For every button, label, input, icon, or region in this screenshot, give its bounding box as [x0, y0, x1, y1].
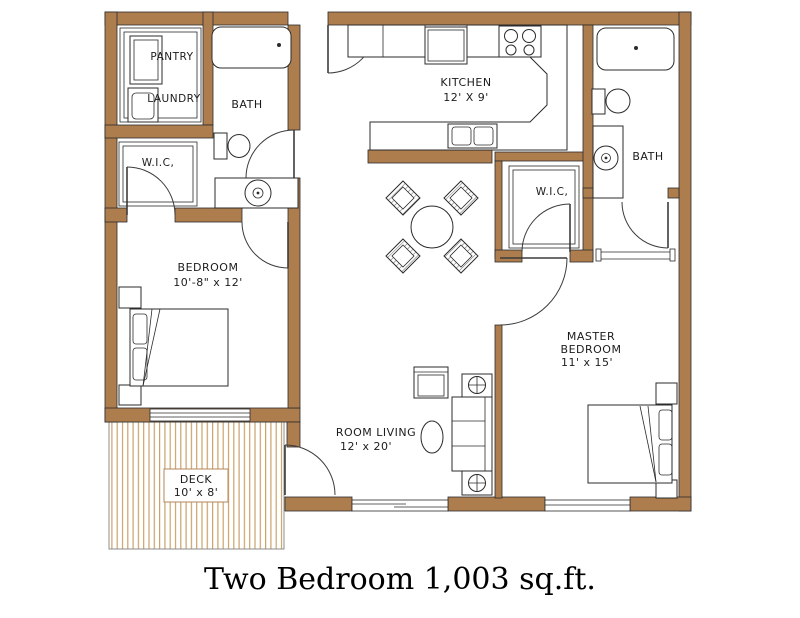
bed-master	[588, 383, 677, 498]
wall-wic-right-bottom-b	[570, 250, 593, 262]
floor-plan-drawing: PANTRY LAUNDRY BATH W.I.C, KITCHEN 12' X…	[0, 0, 800, 558]
bathtub	[212, 27, 291, 68]
wall-divider-a	[495, 161, 502, 258]
nightstand	[119, 385, 141, 405]
bath-left-door	[246, 130, 294, 178]
window-master	[545, 500, 630, 511]
sliding-door-living	[352, 500, 448, 511]
wall-laundry-bottom	[105, 125, 213, 138]
bathtub	[597, 28, 674, 70]
wall-wic-bedroom-a	[105, 208, 127, 222]
wall-deck-door	[287, 422, 300, 447]
window-bedroom	[150, 409, 250, 421]
refrigerator	[425, 27, 467, 64]
wic-left-lining	[119, 142, 197, 206]
kitchen-dims: 12' X 9'	[443, 91, 489, 104]
bed-left	[119, 287, 228, 405]
wic-left-door	[127, 167, 175, 215]
sink-vanity	[593, 126, 623, 198]
wic-right-door	[522, 204, 570, 252]
bath-left-label: BATH	[231, 98, 262, 111]
master-dims: 11' x 15'	[561, 356, 613, 369]
kitchen-label: KITCHEN	[440, 76, 491, 89]
master-door	[500, 258, 567, 325]
toilet	[592, 89, 630, 114]
bedroom-door	[242, 222, 288, 268]
breakfast-bar	[368, 150, 492, 163]
living-dims: 12' x 20'	[340, 440, 392, 453]
deck-label: DECK	[180, 473, 213, 486]
wall-bottom-a	[285, 497, 352, 511]
wall-bath-right-left	[583, 25, 593, 260]
bath-right-label: BATH	[632, 150, 663, 163]
end-table-lamp	[462, 374, 492, 397]
deck-door	[285, 445, 335, 495]
cased-opening-master	[596, 249, 675, 261]
dining-chair	[444, 181, 478, 215]
pantry-label: PANTRY	[150, 51, 193, 63]
wall-top-left	[105, 12, 288, 25]
plan-title: Two Bedroom 1,003 sq.ft.	[0, 562, 800, 597]
dining-chair	[386, 239, 420, 273]
nightstand	[119, 287, 141, 308]
toilet	[214, 133, 250, 159]
laundry-label: LAUNDRY	[147, 93, 201, 105]
wall-bottom-c	[630, 497, 691, 511]
bedroom-dims: 10'-8" x 12'	[173, 276, 243, 289]
master-label-2: BEDROOM	[561, 343, 622, 356]
coffee-table	[421, 421, 443, 453]
wall-divider-b	[495, 325, 502, 498]
wall-wic-bedroom-b	[175, 208, 242, 222]
armchair	[414, 367, 448, 398]
wall-bath-right-bottom-b	[668, 188, 679, 198]
wall-wic-right-top	[495, 152, 593, 161]
wall-right	[679, 12, 691, 511]
master-label-1: MASTER	[567, 330, 615, 343]
sink-vanity	[215, 178, 298, 208]
dining-chair	[444, 239, 478, 273]
end-table-lamp	[462, 471, 492, 495]
floor-plan-page: PANTRY LAUNDRY BATH W.I.C, KITCHEN 12' X…	[0, 0, 800, 618]
bath-right-fixtures	[592, 28, 674, 198]
wall-bottom-b	[448, 497, 545, 511]
pantry-laundry	[120, 28, 201, 122]
living-label: ROOM LIVING	[336, 426, 416, 439]
wic-right-label: W.I.C,	[536, 186, 569, 198]
dining-chair	[386, 181, 420, 215]
wic-right-lining	[509, 166, 579, 248]
living-room-furniture	[414, 367, 492, 495]
bath-right-door	[622, 202, 668, 248]
deck-dims: 10' x 8'	[174, 486, 219, 499]
wall-left-section-b	[288, 178, 300, 408]
stove	[499, 26, 541, 57]
nightstand	[656, 383, 677, 404]
wic-left-label: W.I.C,	[142, 157, 175, 169]
wall-wic-right-bottom-a	[495, 250, 522, 262]
wall-top-right	[328, 12, 691, 25]
dining-table	[411, 206, 453, 248]
bedroom-label: BEDROOM	[178, 261, 239, 274]
wall-pantry-right	[203, 12, 213, 125]
sofa	[452, 397, 492, 471]
kitchen-sink	[448, 124, 497, 148]
bath-left-fixtures	[212, 27, 298, 208]
dining-set	[386, 181, 478, 273]
